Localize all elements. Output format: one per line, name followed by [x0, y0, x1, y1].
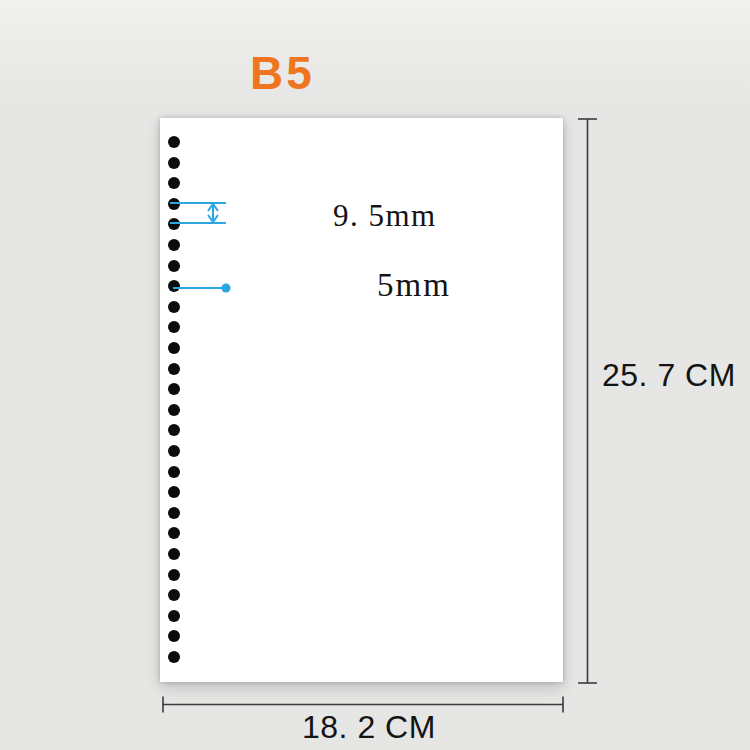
width-dimension-label: 18. 2 CM [302, 709, 436, 746]
height-dimension-label: 25. 7 CM [602, 357, 736, 394]
hole-dot [168, 280, 180, 292]
hole-dot [168, 630, 180, 642]
hole-dot [168, 404, 180, 416]
hole-dot [168, 177, 180, 189]
hole-dot [168, 610, 180, 622]
page-title: B5 [250, 46, 315, 100]
binder-holes [160, 118, 190, 682]
hole-dot [168, 218, 180, 230]
hole-dot [168, 301, 180, 313]
hole-dot [168, 136, 180, 148]
hole-dot [168, 157, 180, 169]
hole-dot [168, 466, 180, 478]
hole-dot [168, 260, 180, 272]
hole-dot [168, 486, 180, 498]
hole-dot [168, 198, 180, 210]
hole-dot [168, 507, 180, 519]
hole-dot [168, 589, 180, 601]
hole-dot [168, 321, 180, 333]
hole-dot [168, 548, 180, 560]
hole-dot [168, 445, 180, 457]
hole-spacing-label: 9. 5mm [333, 198, 437, 234]
hole-diameter-label: 5mm [377, 267, 451, 304]
hole-dot [168, 342, 180, 354]
hole-dot [168, 383, 180, 395]
hole-dot [168, 363, 180, 375]
hole-dot [168, 239, 180, 251]
hole-dot [168, 424, 180, 436]
hole-dot [168, 569, 180, 581]
hole-dot [168, 527, 180, 539]
hole-dot [168, 651, 180, 663]
height-dimension-line [578, 119, 597, 683]
